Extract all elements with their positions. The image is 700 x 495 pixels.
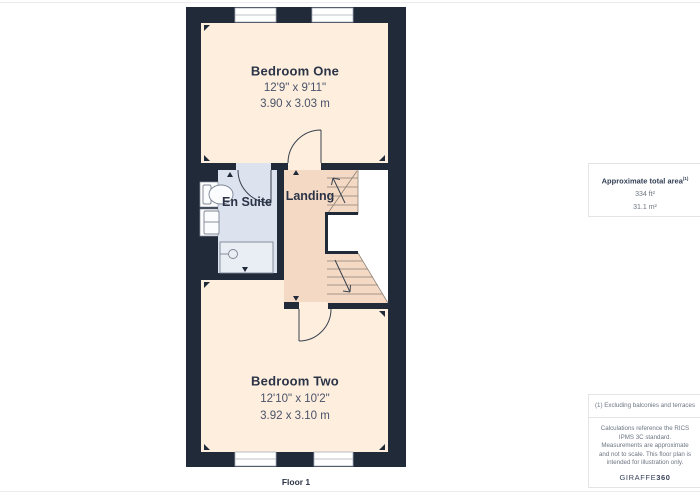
area-metric: 31.1 m² xyxy=(589,203,700,212)
stairwell-void xyxy=(358,170,388,214)
bedroom-two-metric-dim: 3.92 x 3.10 m xyxy=(260,410,330,422)
ensuite-door-opening xyxy=(236,163,271,170)
ensuite-label: En Suite xyxy=(222,195,272,209)
bedroom-one-label: Bedroom One xyxy=(251,64,339,79)
bedroom-two-door-opening xyxy=(299,302,328,309)
footnote-box: (1) Excluding balconies and terraces xyxy=(588,394,700,418)
area-title: Approximate total area(1) xyxy=(589,176,700,186)
disclaimer-text: Calculations reference the RICS IPMS 3C … xyxy=(598,425,692,468)
floor-label: Floor 1 xyxy=(282,477,310,487)
landing-label: Landing xyxy=(286,189,335,203)
approximate-area-box: Approximate total area(1) 334 ft² 31.1 m… xyxy=(588,163,700,217)
bedroom-two-label: Bedroom Two xyxy=(251,374,339,389)
floorplan-page: Bedroom One 12'9" x 9'11" 3.90 x 3.03 m … xyxy=(0,0,700,495)
bedroom-two-imperial-dim: 12'10" x 10'2" xyxy=(260,393,329,405)
area-footnote-ref: (1) xyxy=(683,176,689,181)
footnote-text: (1) Excluding balconies and terraces xyxy=(595,402,695,409)
area-imperial: 334 ft² xyxy=(589,190,700,199)
bedroom-one-imperial-dim: 12'9" x 9'11" xyxy=(264,82,326,94)
bedroom-two-alcove xyxy=(201,280,284,309)
stairwell-void xyxy=(327,214,388,253)
bedroom-one-door-opening xyxy=(288,163,321,170)
bedroom-one-metric-dim: 3.90 x 3.03 m xyxy=(260,98,330,110)
giraffe360-logo: GIRAFFE360 xyxy=(598,474,692,483)
disclaimer-box: Calculations reference the RICS IPMS 3C … xyxy=(588,417,700,488)
staircase xyxy=(325,170,388,303)
sink-icon xyxy=(204,211,219,234)
